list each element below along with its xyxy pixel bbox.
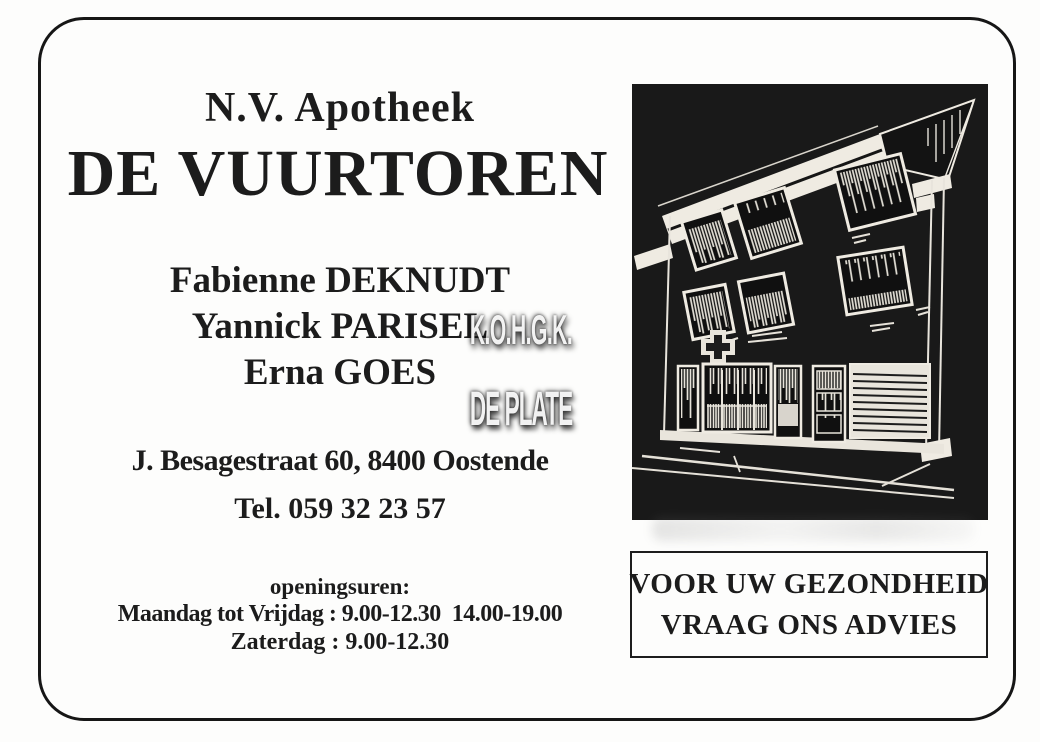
pharmacist-name: Fabienne DEKNUDT bbox=[40, 258, 640, 304]
slogan-line-1: VOOR UW GEZONDHEID bbox=[629, 564, 988, 605]
pharmacist-names: Fabienne DEKNUDT Yannick PARISEL Erna GO… bbox=[40, 258, 640, 396]
hours-weekdays: Maandag tot Vrijdag : 9.00-12.30 14.00-1… bbox=[40, 601, 640, 628]
scanned-ad-page: N.V. Apotheek DE VUURTOREN Fabienne DEKN… bbox=[0, 0, 1040, 742]
shop-window bbox=[703, 364, 771, 432]
hours-saturday: Zaterdag : 9.00-12.30 bbox=[40, 629, 640, 656]
slogan-line-2: VRAAG ONS ADVIES bbox=[661, 605, 957, 646]
phone-line: Tel. 059 32 23 57 bbox=[40, 492, 640, 526]
entrance-door bbox=[775, 366, 801, 438]
pharmacist-name: Erna GOES bbox=[40, 350, 640, 396]
paneled-door bbox=[813, 366, 845, 442]
print-bleed-artifact bbox=[652, 517, 974, 541]
garage-door bbox=[850, 364, 930, 438]
building-photo bbox=[632, 84, 988, 520]
advice-box: VOOR UW GEZONDHEID VRAAG ONS ADVIES bbox=[630, 551, 988, 658]
company-name: DE VUURTOREN bbox=[28, 136, 648, 212]
company-prefix: N.V. Apotheek bbox=[40, 84, 640, 132]
side-door bbox=[678, 366, 698, 430]
pharmacist-name: Yannick PARISEL bbox=[40, 304, 640, 350]
address-line: J. Besagestraat 60, 8400 Oostende bbox=[40, 444, 640, 478]
building-line-art bbox=[632, 84, 988, 520]
hours-title: openingsuren: bbox=[40, 574, 640, 600]
